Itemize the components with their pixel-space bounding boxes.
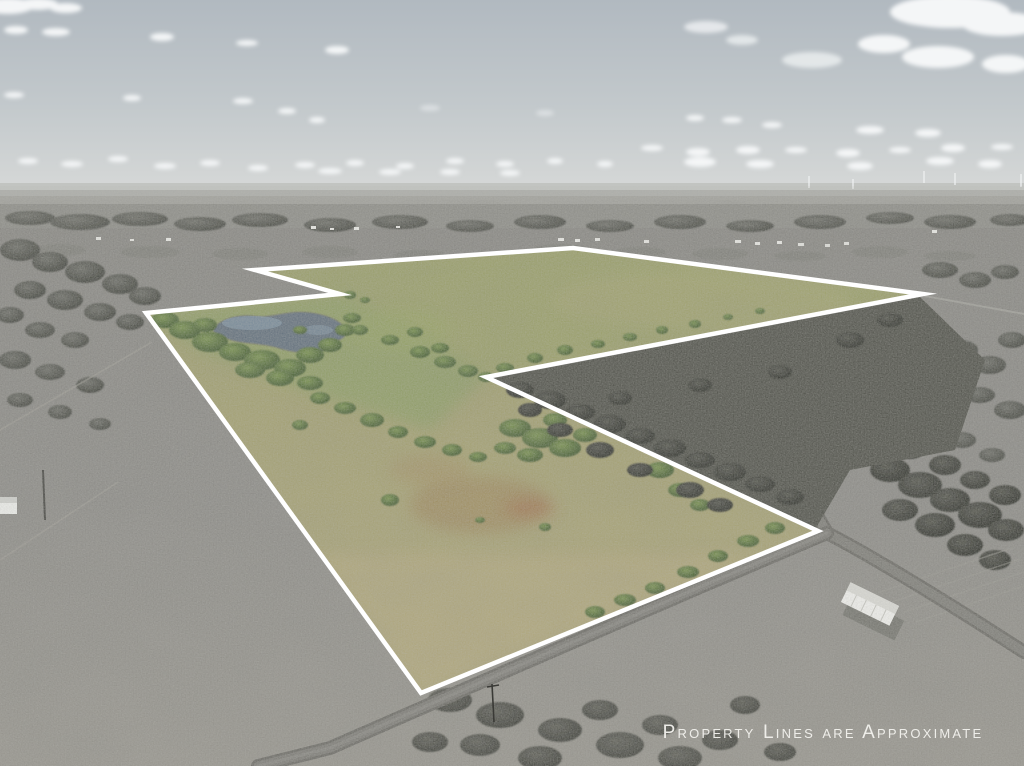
caption-text: Property Lines are Approximate	[663, 722, 984, 743]
aerial-property-photo: Property Lines are Approximate	[0, 0, 1024, 766]
photo-grain	[0, 186, 1024, 766]
photo-canvas: Property Lines are Approximate	[0, 0, 1024, 766]
